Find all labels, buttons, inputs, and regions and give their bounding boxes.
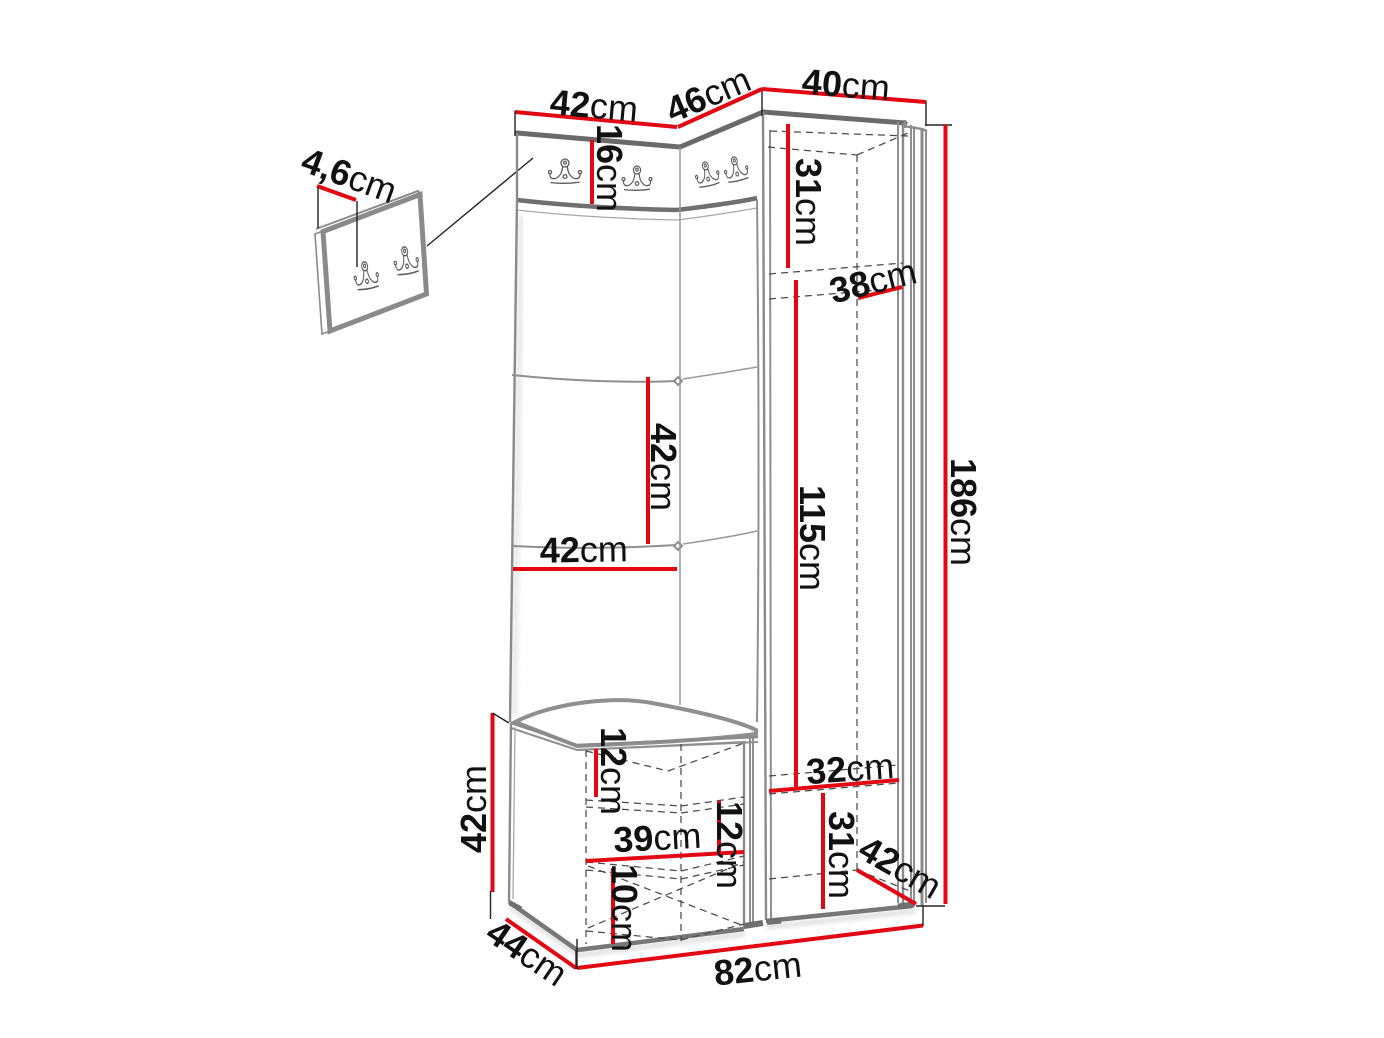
svg-text:42cm: 42cm (453, 765, 494, 853)
svg-text:42cm: 42cm (548, 81, 639, 130)
svg-text:42cm: 42cm (539, 528, 628, 571)
svg-text:32cm: 32cm (805, 745, 896, 792)
svg-text:186cm: 186cm (943, 458, 984, 566)
svg-text:39cm: 39cm (612, 815, 702, 861)
svg-text:40cm: 40cm (800, 61, 891, 109)
svg-text:31cm: 31cm (788, 158, 829, 246)
svg-text:12cm: 12cm (709, 801, 750, 889)
svg-text:10cm: 10cm (604, 864, 645, 952)
svg-text:12cm: 12cm (593, 727, 634, 815)
svg-text:42cm: 42cm (643, 423, 684, 511)
svg-text:16cm: 16cm (589, 124, 630, 212)
svg-text:115cm: 115cm (792, 485, 833, 591)
